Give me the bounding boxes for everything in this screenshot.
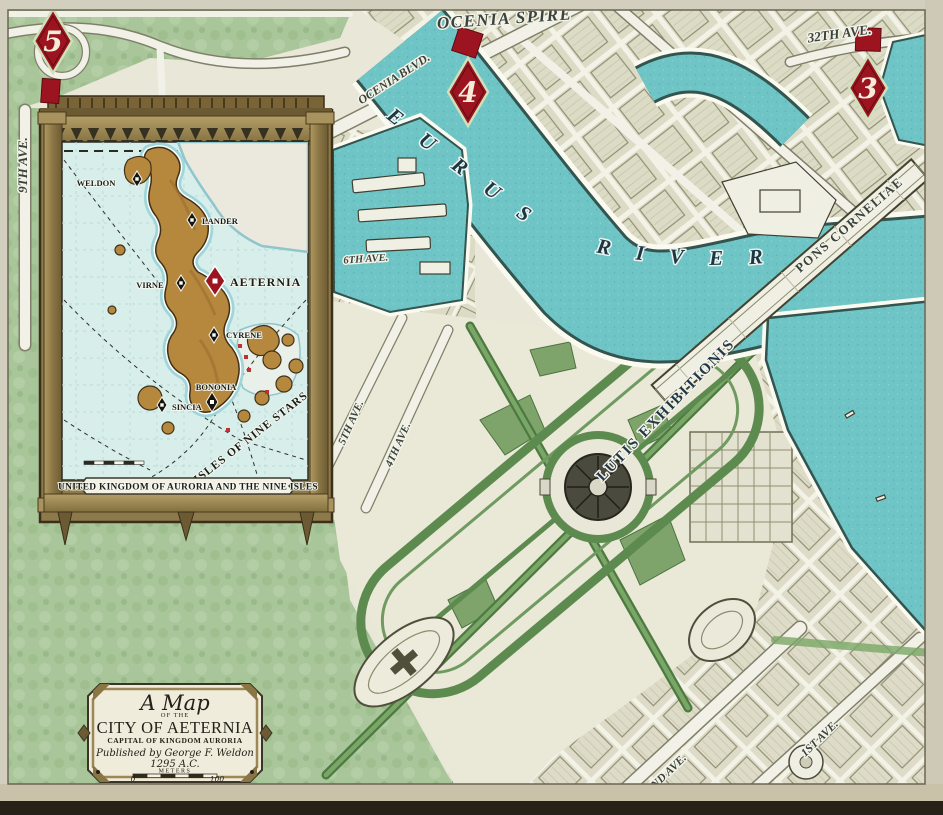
inset-town-label-lander: LANDER [202,216,239,226]
frame-column-left [44,116,62,512]
inset-map: WELDON LANDER VIRNE AETERNIA CYRENE BONO… [38,96,334,545]
inset-town-label-cyrene: CYRENE [226,330,262,340]
cartouche-city-title: CITY OF AETERNIA [97,718,254,737]
marker-4-number: 4 [458,76,477,109]
scale-start: 0 [131,775,136,784]
scale-units-label: METERS [159,769,192,775]
inset-banner: UNITED KINGDOM OF AURORIA AND THE NINE I… [58,478,318,494]
central-plaza-wheel [540,435,656,539]
marker-5-building[interactable] [41,78,61,103]
inset-town-label-bononia: BONONIA [196,382,237,392]
label-9th-ave: 9TH AVE. [15,137,30,193]
frame-teeth [58,128,314,142]
aeternia-city-map: WELDON LANDER VIRNE AETERNIA CYRENE BONO… [0,0,943,815]
title-cartouche: A Map OF THE CITY OF AETERNIA CAPITAL OF… [78,684,272,784]
cartouche-publisher: Published by George F. Weldon [95,748,254,759]
marker-3-number: 3 [858,72,877,105]
city-map-screenshot: WELDON LANDER VIRNE AETERNIA CYRENE BONO… [0,0,943,815]
inset-town-label-virne: VIRNE [136,280,164,290]
inset-town-label-aeternia: AETERNIA [230,275,301,289]
inset-scale-bar [84,461,144,465]
marker-5-number: 5 [43,25,62,58]
scale-end: 100 [210,775,225,784]
frame-column-right [310,116,328,512]
inset-banner-text: UNITED KINGDOM OF AURORIA AND THE NINE I… [58,483,318,493]
inset-town-label-sincia: SINCIA [172,402,203,412]
inset-town-label-weldon: WELDON [77,178,117,188]
cartouche-subtitle: CAPITAL OF KINGDOM AURORIA [107,736,242,745]
